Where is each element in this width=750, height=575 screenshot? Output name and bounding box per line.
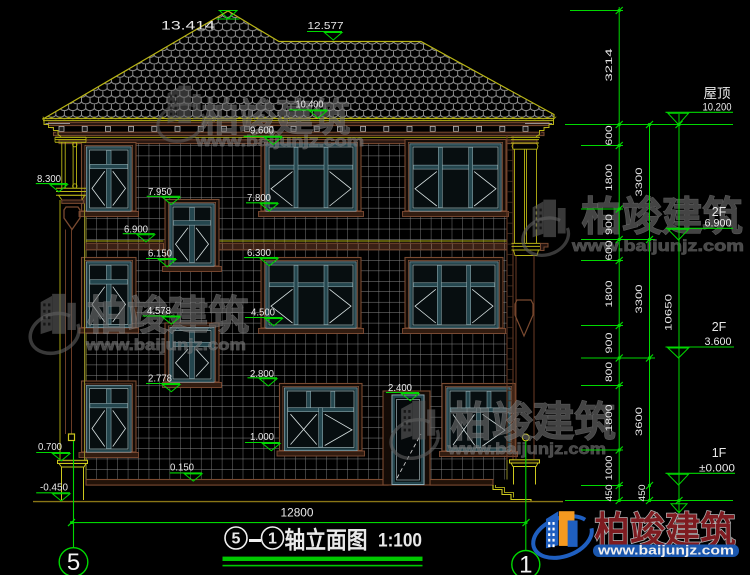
svg-text:2.778: 2.778 (148, 373, 172, 385)
svg-text:2F: 2F (712, 320, 727, 334)
svg-text:1: 1 (519, 552, 532, 575)
svg-text:10.400: 10.400 (296, 99, 324, 111)
svg-text:800: 800 (604, 362, 615, 382)
svg-text:www.baijunjz.com: www.baijunjz.com (571, 238, 744, 255)
svg-text:450: 450 (604, 485, 615, 502)
svg-text:600: 600 (604, 126, 615, 146)
svg-text:5: 5 (232, 531, 241, 548)
svg-text:3300: 3300 (634, 285, 645, 314)
svg-text:0.700: 0.700 (38, 441, 62, 453)
svg-text:3.600: 3.600 (705, 336, 732, 348)
svg-text:1800: 1800 (604, 281, 615, 308)
svg-text:450: 450 (637, 485, 648, 502)
svg-text:600: 600 (604, 241, 615, 261)
svg-text:1.000: 1.000 (250, 431, 274, 443)
svg-text:0.150: 0.150 (170, 462, 194, 474)
svg-text:轴立面图: 轴立面图 (285, 526, 368, 553)
svg-text:900: 900 (604, 333, 615, 354)
svg-text:4.578: 4.578 (147, 305, 171, 317)
svg-text:www.baijunjz.com: www.baijunjz.com (85, 337, 246, 354)
svg-text:3300: 3300 (634, 168, 645, 197)
svg-text:1000: 1000 (604, 456, 615, 481)
svg-text:13.414: 13.414 (161, 21, 216, 33)
svg-text:10.200: 10.200 (703, 102, 732, 114)
svg-text:6.900: 6.900 (705, 218, 732, 230)
svg-text:www.baijunjz.com: www.baijunjz.com (597, 544, 734, 558)
svg-text:12.577: 12.577 (308, 20, 344, 32)
svg-text:7.800: 7.800 (247, 192, 271, 204)
svg-text:柏竣建筑: 柏竣建筑 (451, 399, 616, 445)
svg-text:10650: 10650 (664, 294, 675, 331)
svg-text:6.150: 6.150 (148, 248, 172, 260)
svg-text:9.600: 9.600 (250, 125, 274, 137)
svg-text:1:100: 1:100 (378, 531, 422, 552)
svg-text:3214: 3214 (604, 49, 615, 82)
svg-text:12800: 12800 (281, 506, 314, 520)
svg-text:5: 5 (67, 549, 80, 575)
svg-text:900: 900 (604, 214, 615, 235)
svg-text:3600: 3600 (634, 407, 645, 436)
svg-text:-0.450: -0.450 (40, 482, 68, 494)
svg-text:1800: 1800 (604, 405, 615, 432)
svg-text:4.500: 4.500 (251, 307, 275, 319)
svg-text:屋顶: 屋顶 (704, 86, 731, 101)
svg-text:1: 1 (268, 531, 277, 548)
svg-text:1F: 1F (712, 446, 727, 460)
svg-text:1800: 1800 (604, 164, 615, 191)
svg-text:±0.000: ±0.000 (699, 463, 735, 475)
